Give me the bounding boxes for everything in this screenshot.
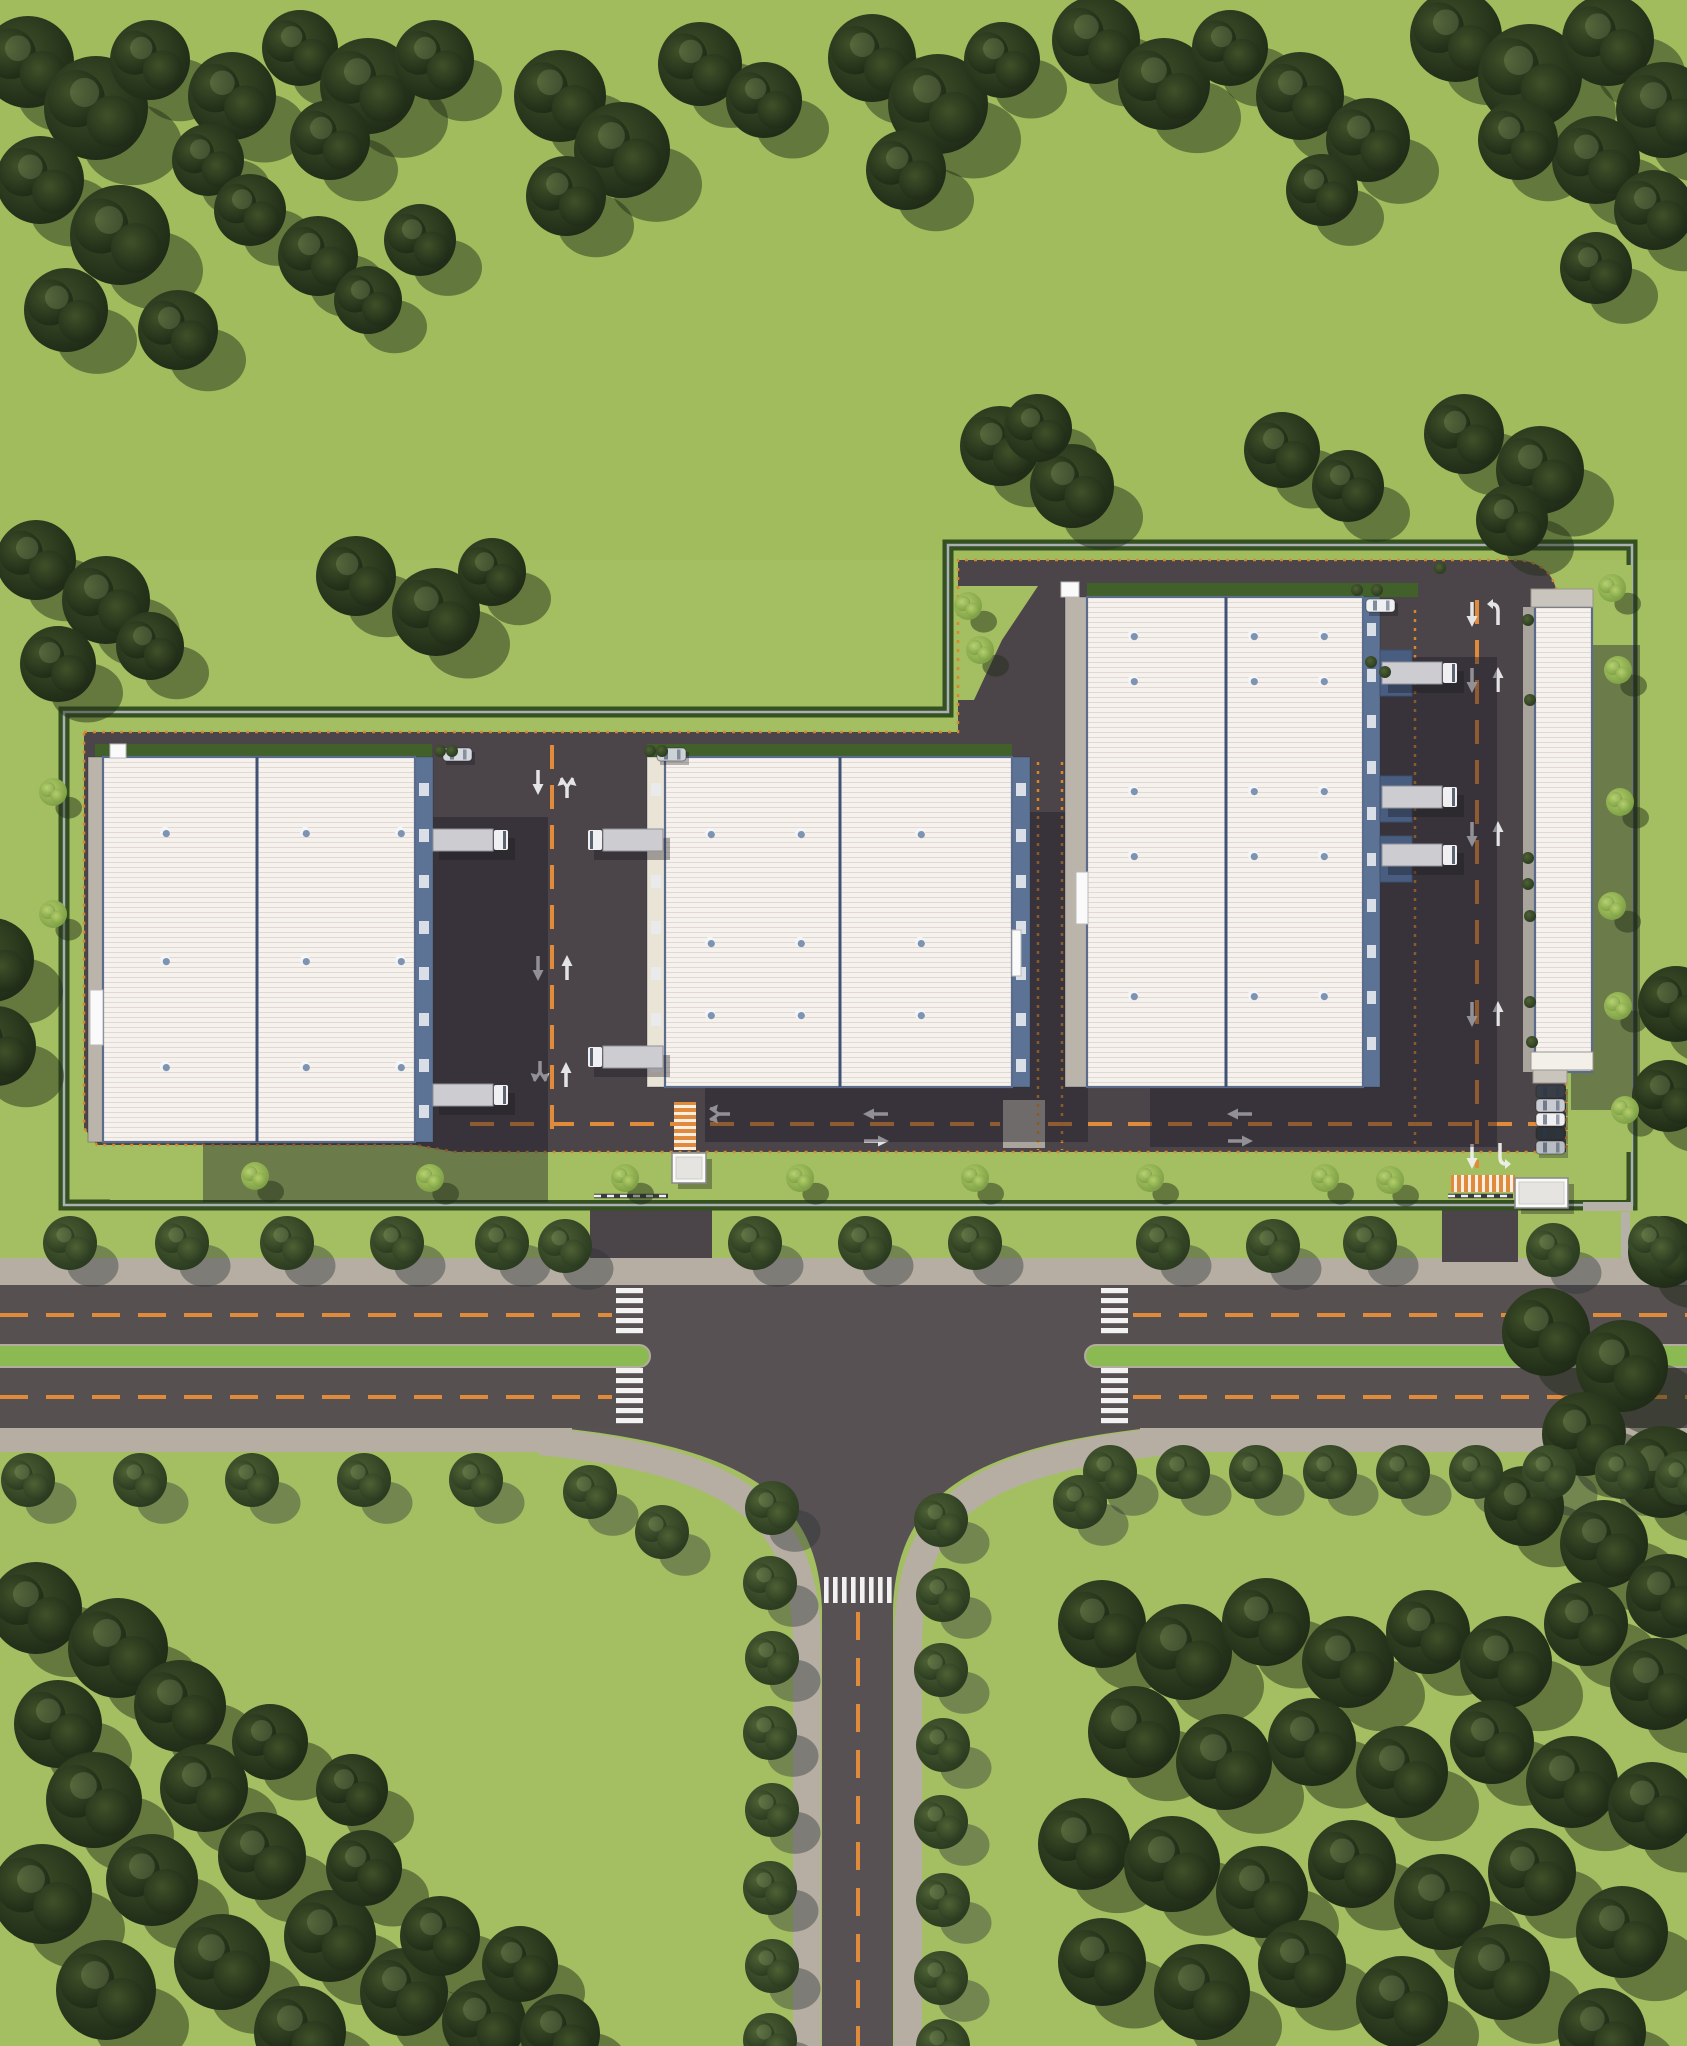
bush bbox=[1434, 562, 1446, 574]
bush bbox=[1351, 584, 1363, 596]
street-tree bbox=[728, 1216, 782, 1270]
roof-vent bbox=[1318, 785, 1328, 795]
forest-tree bbox=[1386, 1590, 1470, 1674]
street-tree bbox=[475, 1216, 529, 1270]
forest-tree bbox=[218, 1812, 306, 1900]
roof-vent bbox=[395, 1061, 405, 1071]
roof-vent bbox=[1248, 850, 1258, 860]
bush bbox=[446, 745, 458, 757]
light-tree bbox=[786, 1164, 814, 1192]
light-tree bbox=[1611, 1096, 1639, 1124]
forest-tree bbox=[334, 266, 402, 334]
roof-vent bbox=[160, 827, 170, 837]
warehouse-1-roof bbox=[103, 757, 415, 1142]
forest-tree bbox=[1356, 1726, 1448, 1818]
roof-vent bbox=[1128, 675, 1138, 685]
forest-tree bbox=[482, 1926, 558, 2002]
forest-tree bbox=[1192, 10, 1268, 86]
street-tree bbox=[635, 1505, 689, 1559]
hedge-band bbox=[1362, 583, 1418, 597]
light-tree bbox=[1136, 1164, 1164, 1192]
forest-tree bbox=[1004, 394, 1072, 462]
docked-truck bbox=[1382, 662, 1464, 693]
forest-tree bbox=[1478, 100, 1558, 180]
forest-tree bbox=[160, 1744, 248, 1832]
guard-house bbox=[1515, 1178, 1574, 1214]
roof-vent bbox=[160, 955, 170, 965]
forest-tree bbox=[1424, 394, 1504, 474]
forest-tree bbox=[964, 22, 1040, 98]
forest-tree bbox=[290, 100, 370, 180]
forest-tree bbox=[214, 174, 286, 246]
light-tree bbox=[1598, 574, 1626, 602]
forest-tree bbox=[70, 185, 170, 285]
street-tree bbox=[1526, 1223, 1580, 1277]
street-tree bbox=[1628, 1216, 1682, 1270]
docked-truck bbox=[433, 829, 515, 860]
roof-vent bbox=[705, 937, 715, 947]
forest-tree bbox=[46, 1752, 142, 1848]
forest-tree bbox=[174, 1914, 270, 2010]
light-tree bbox=[39, 900, 67, 928]
street-tree bbox=[914, 1643, 968, 1697]
street-tree bbox=[538, 1219, 592, 1273]
street-tree bbox=[743, 1861, 797, 1915]
forest-tree bbox=[1058, 1918, 1146, 2006]
bush bbox=[1371, 584, 1383, 596]
forest-tree bbox=[316, 536, 396, 616]
forest-tree bbox=[134, 1660, 226, 1752]
bush bbox=[1524, 996, 1536, 1008]
roof-vent bbox=[795, 1009, 805, 1019]
roof-vent bbox=[160, 1061, 170, 1071]
roof-vent bbox=[1248, 785, 1258, 795]
street-tree bbox=[745, 1783, 799, 1837]
light-tree bbox=[39, 778, 67, 806]
forest-tree bbox=[1526, 1736, 1618, 1828]
street-tree bbox=[155, 1216, 209, 1270]
forest-tree bbox=[0, 136, 84, 224]
docked-truck bbox=[1382, 786, 1464, 817]
light-tree bbox=[1604, 656, 1632, 684]
speed-bump bbox=[674, 1102, 696, 1150]
street-tree bbox=[1303, 1445, 1357, 1499]
forest-tree bbox=[1460, 1616, 1552, 1708]
forest-tree bbox=[20, 626, 96, 702]
roof-vent bbox=[1128, 850, 1138, 860]
forest-tree bbox=[116, 612, 184, 680]
light-tree bbox=[954, 592, 982, 620]
street-tree bbox=[1376, 1445, 1430, 1499]
forest-tree bbox=[106, 1834, 198, 1926]
forest-tree bbox=[1312, 450, 1384, 522]
roof-vent bbox=[795, 937, 805, 947]
parked-car bbox=[1366, 599, 1398, 616]
street-tree bbox=[916, 1873, 970, 1927]
roof-vent bbox=[915, 937, 925, 947]
bush bbox=[644, 745, 656, 757]
forest-tree bbox=[326, 1830, 402, 1906]
forest-tree bbox=[866, 130, 946, 210]
street-tree bbox=[914, 1493, 968, 1547]
speed-bump bbox=[1451, 1175, 1515, 1192]
guard-house bbox=[672, 1153, 712, 1189]
street-tree bbox=[745, 1631, 799, 1685]
forest-tree bbox=[1454, 1924, 1550, 2020]
roof-vent bbox=[1248, 990, 1258, 1000]
street-tree bbox=[916, 1568, 970, 1622]
light-tree bbox=[1311, 1164, 1339, 1192]
roof-vent bbox=[705, 1009, 715, 1019]
hedge-band bbox=[1087, 583, 1363, 597]
street-tree bbox=[113, 1453, 167, 1507]
forest-tree bbox=[1088, 1686, 1180, 1778]
south-sidewalk-left bbox=[0, 1428, 572, 1452]
forest-tree bbox=[56, 1940, 156, 2040]
forest-tree bbox=[1308, 1820, 1396, 1908]
forest-tree bbox=[1058, 1580, 1146, 1668]
bush bbox=[1522, 852, 1534, 864]
forest-tree bbox=[1450, 1700, 1534, 1784]
roof-vent bbox=[1318, 675, 1328, 685]
forest-tree bbox=[394, 20, 474, 100]
forest-tree bbox=[316, 1754, 388, 1826]
street-tree bbox=[838, 1216, 892, 1270]
roof-vent bbox=[915, 1009, 925, 1019]
street-tree bbox=[1136, 1216, 1190, 1270]
aerial-site-plan bbox=[0, 0, 1687, 2046]
light-tree bbox=[416, 1164, 444, 1192]
forest-tree bbox=[1356, 1956, 1448, 2046]
forest-tree bbox=[24, 268, 108, 352]
bush bbox=[1524, 694, 1536, 706]
light-tree bbox=[241, 1162, 269, 1190]
forest-tree bbox=[110, 20, 190, 100]
street-tree bbox=[1595, 1445, 1649, 1499]
roof-vent bbox=[395, 827, 405, 837]
street-tree bbox=[743, 1556, 797, 1610]
street-tree bbox=[1449, 1445, 1503, 1499]
roof-vent bbox=[1318, 990, 1328, 1000]
roof-vent bbox=[300, 1061, 310, 1071]
street-tree bbox=[1053, 1475, 1107, 1529]
docked-truck bbox=[588, 829, 670, 860]
forest-tree bbox=[1286, 154, 1358, 226]
street-tree bbox=[1, 1453, 55, 1507]
roof-vent bbox=[1318, 850, 1328, 860]
roof-vent bbox=[705, 828, 715, 838]
forest-tree bbox=[1154, 1944, 1250, 2040]
street-tree bbox=[1156, 1445, 1210, 1499]
street-tree bbox=[1522, 1445, 1576, 1499]
forest-tree bbox=[726, 62, 802, 138]
forest-tree bbox=[1258, 1920, 1346, 2008]
street-tree bbox=[745, 1939, 799, 1993]
docked-truck bbox=[1382, 844, 1464, 875]
street-tree bbox=[745, 1481, 799, 1535]
light-tree bbox=[966, 636, 994, 664]
forest-tree bbox=[458, 538, 526, 606]
street-tree bbox=[1229, 1445, 1283, 1499]
street-tree bbox=[743, 1706, 797, 1760]
roof-vent bbox=[795, 828, 805, 838]
street-tree bbox=[1246, 1219, 1300, 1273]
bush bbox=[1365, 656, 1377, 668]
roof-vent bbox=[300, 955, 310, 965]
forest-tree bbox=[1302, 1616, 1394, 1708]
bush bbox=[1524, 910, 1536, 922]
street-tree bbox=[914, 1795, 968, 1849]
roof-vent bbox=[1128, 990, 1138, 1000]
forest-tree bbox=[384, 204, 456, 276]
warehouse-3 bbox=[1061, 582, 1412, 1087]
roof-vent bbox=[1128, 785, 1138, 795]
street-tree bbox=[370, 1216, 424, 1270]
forest-tree bbox=[1136, 1604, 1232, 1700]
median-left bbox=[0, 1345, 650, 1367]
forest-tree bbox=[1038, 1798, 1130, 1890]
footpath bbox=[1583, 1202, 1633, 1211]
parked-car bbox=[1536, 1141, 1568, 1158]
ancillary-building-roof bbox=[1535, 607, 1592, 1072]
street-tree bbox=[449, 1453, 503, 1507]
forest-tree bbox=[526, 156, 606, 236]
forest-tree bbox=[1244, 412, 1320, 488]
roof-vent bbox=[1248, 675, 1258, 685]
roof-vent bbox=[1248, 630, 1258, 640]
scene-svg bbox=[0, 0, 1687, 2046]
roof-vent bbox=[915, 828, 925, 838]
forest-tree bbox=[1576, 1886, 1668, 1978]
ancillary-building bbox=[1531, 589, 1593, 1083]
warehouse-1 bbox=[88, 744, 433, 1142]
bush bbox=[434, 745, 446, 757]
roof-vent bbox=[300, 827, 310, 837]
street-tree bbox=[337, 1453, 391, 1507]
roof-vent bbox=[1318, 630, 1328, 640]
forest-tree bbox=[232, 1704, 308, 1780]
light-tree bbox=[1598, 892, 1626, 920]
light-tree bbox=[611, 1164, 639, 1192]
bush bbox=[1526, 1036, 1538, 1048]
street-tree bbox=[916, 1718, 970, 1772]
forest-tree bbox=[1560, 232, 1632, 304]
light-tree bbox=[961, 1164, 989, 1192]
street-tree bbox=[225, 1453, 279, 1507]
forest-tree bbox=[1476, 484, 1548, 556]
roof-vent bbox=[395, 955, 405, 965]
north-sidewalk bbox=[0, 1258, 1687, 1285]
forest-tree bbox=[1544, 1582, 1628, 1666]
bush bbox=[1379, 666, 1391, 678]
forest-tree bbox=[1124, 1816, 1220, 1912]
bush bbox=[656, 745, 668, 757]
bush bbox=[1522, 878, 1534, 890]
street-tree bbox=[563, 1465, 617, 1519]
street-tree bbox=[948, 1216, 1002, 1270]
bush bbox=[1522, 614, 1534, 626]
light-tree bbox=[1376, 1166, 1404, 1194]
light-tree bbox=[1604, 992, 1632, 1020]
forest-tree bbox=[400, 1896, 480, 1976]
warehouse-2 bbox=[647, 757, 1030, 1087]
forest-tree bbox=[1176, 1714, 1272, 1810]
street-tree bbox=[43, 1216, 97, 1270]
forest-tree bbox=[1222, 1578, 1310, 1666]
forest-tree bbox=[1268, 1698, 1356, 1786]
light-tree bbox=[1606, 788, 1634, 816]
street-tree bbox=[260, 1216, 314, 1270]
roof-vent bbox=[1128, 630, 1138, 640]
street-tree bbox=[1343, 1216, 1397, 1270]
forest-tree bbox=[138, 290, 218, 370]
docked-truck bbox=[588, 1046, 670, 1077]
street-tree bbox=[914, 1951, 968, 2005]
forest-tree bbox=[1488, 1828, 1576, 1916]
docked-truck bbox=[433, 1084, 515, 1115]
